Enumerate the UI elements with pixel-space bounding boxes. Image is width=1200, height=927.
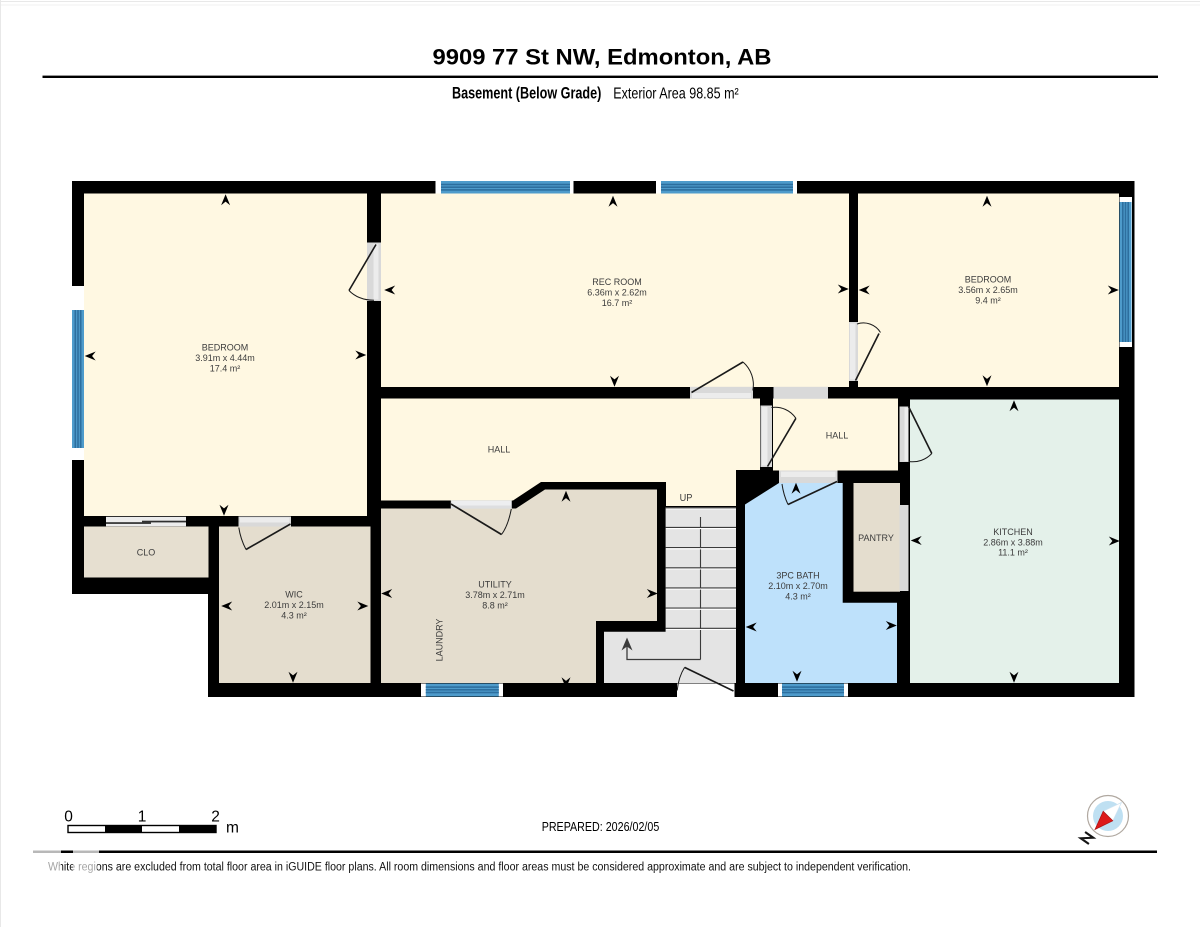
svg-text:1: 1 (138, 809, 147, 826)
svg-text:Exterior Area 98.85 m²: Exterior Area 98.85 m² (613, 85, 738, 102)
svg-text:BEDROOM: BEDROOM (202, 343, 249, 353)
svg-text:3.91m x 4.44m: 3.91m x 4.44m (195, 353, 255, 363)
svg-text:m: m (226, 820, 239, 837)
svg-text:CLO: CLO (137, 548, 156, 558)
svg-text:8.8 m²: 8.8 m² (482, 600, 508, 610)
svg-text:11.1 m²: 11.1 m² (998, 547, 1028, 557)
svg-text:9909 77 St NW, Edmonton, AB: 9909 77 St NW, Edmonton, AB (433, 45, 772, 70)
svg-text:3.56m x 2.65m: 3.56m x 2.65m (958, 285, 1018, 295)
svg-text:UTILITY: UTILITY (478, 580, 512, 590)
svg-text:HALL: HALL (488, 445, 511, 455)
svg-text:2.01m x 2.15m: 2.01m x 2.15m (264, 600, 324, 610)
svg-text:PANTRY: PANTRY (858, 533, 894, 543)
svg-text:3PC BATH: 3PC BATH (776, 571, 819, 581)
svg-text:4.3 m²: 4.3 m² (281, 610, 307, 620)
svg-text:Basement (Below Grade): Basement (Below Grade) (452, 83, 601, 102)
svg-text:6.36m x 2.62m: 6.36m x 2.62m (587, 288, 647, 298)
svg-text:2.10m x 2.70m: 2.10m x 2.70m (768, 581, 828, 591)
svg-text:REC ROOM: REC ROOM (592, 277, 642, 287)
svg-text:HALL: HALL (826, 431, 849, 441)
svg-text:3.78m x 2.71m: 3.78m x 2.71m (465, 590, 525, 600)
svg-text:9.4 m²: 9.4 m² (975, 295, 1001, 305)
svg-text:PREPARED: 2026/02/05: PREPARED: 2026/02/05 (542, 820, 660, 834)
svg-text:2.86m x 3.88m: 2.86m x 3.88m (983, 537, 1043, 547)
svg-text:4.3 m²: 4.3 m² (785, 591, 811, 601)
svg-text:2: 2 (211, 809, 220, 826)
svg-text:0: 0 (64, 809, 73, 826)
svg-text:LAUNDRY: LAUNDRY (435, 619, 445, 662)
svg-text:BEDROOM: BEDROOM (965, 275, 1012, 285)
svg-text:KITCHEN: KITCHEN (993, 527, 1033, 537)
svg-text:UP: UP (680, 492, 693, 504)
svg-text:White regions are excluded fro: White regions are excluded from total fl… (48, 862, 911, 874)
svg-text:WIC: WIC (285, 590, 303, 600)
svg-text:16.7 m²: 16.7 m² (602, 298, 633, 308)
svg-text:17.4 m²: 17.4 m² (210, 363, 241, 373)
